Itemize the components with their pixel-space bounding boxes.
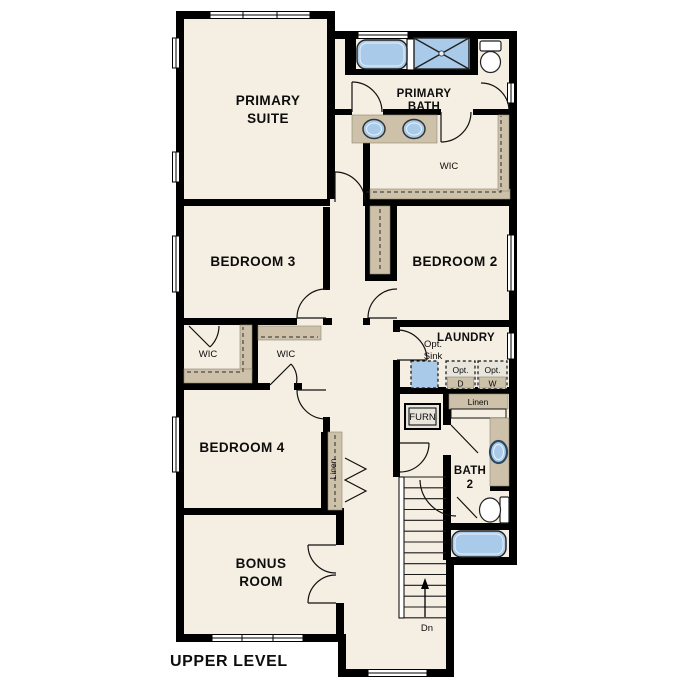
window [508,83,515,103]
bonus-room-label: BONUS [236,556,287,571]
toilet [480,497,510,523]
primary-suite-label: PRIMARY [236,93,301,108]
opt-washer-label: W [488,379,496,389]
shower [414,38,469,69]
wic3-shelf [184,369,252,383]
stair-railing [399,477,404,618]
bedroom2-label: BEDROOM 2 [412,254,497,269]
furnace-label: FURN [409,412,436,423]
window [173,236,180,292]
linen-hall-label: Linen [328,458,338,479]
opt-washer-label: Opt. [484,365,500,375]
wic3-shelf [240,325,252,371]
window [368,670,427,677]
bedroom3-label: BEDROOM 3 [210,254,295,269]
bath2-label: BATH [454,465,486,477]
wic4-label: WIC [277,349,296,360]
upper-level-floorplan: Dn PRIMARY SUITE PRIMARY BATH WIC BEDROO… [0,0,687,687]
primary-bath-label: BATH [408,101,440,113]
window [173,417,180,472]
bathtub [452,531,506,557]
linen-laundry-label: Linen [468,397,489,407]
plan-title: UPPER LEVEL [170,653,288,670]
opt-sink-label: Sink [424,351,443,362]
wic3-label: WIC [199,349,218,360]
window [173,38,180,68]
opt-sink-label: Opt. [424,339,442,350]
toilet [480,41,501,73]
window [358,32,408,39]
opt-dryer-label: D [457,379,463,389]
bathtub [357,40,407,69]
primary-suite-label: SUITE [247,111,289,126]
laundry-label: LAUNDRY [437,332,495,344]
window [210,12,310,19]
primary-wic-label: WIC [440,161,459,172]
primary-bath-label: PRIMARY [397,88,452,100]
floorplan-canvas: Dn PRIMARY SUITE PRIMARY BATH WIC BEDROO… [0,0,687,687]
vanity [490,418,509,486]
opt-dryer-label: Opt. [452,365,468,375]
double-vanity [352,115,437,143]
window [212,635,303,642]
stairs-down-label: Dn [421,623,433,634]
wic4-shelf [258,326,321,340]
bedroom4-label: BEDROOM 4 [199,440,284,455]
window [508,235,515,291]
primary-wic-shelf [370,189,510,199]
optional-sink [411,361,438,388]
bath2-label: 2 [467,479,474,491]
window [508,333,515,359]
bonus-room-label: ROOM [239,574,283,589]
primary-wic-shelf [498,115,509,191]
window [173,152,180,182]
